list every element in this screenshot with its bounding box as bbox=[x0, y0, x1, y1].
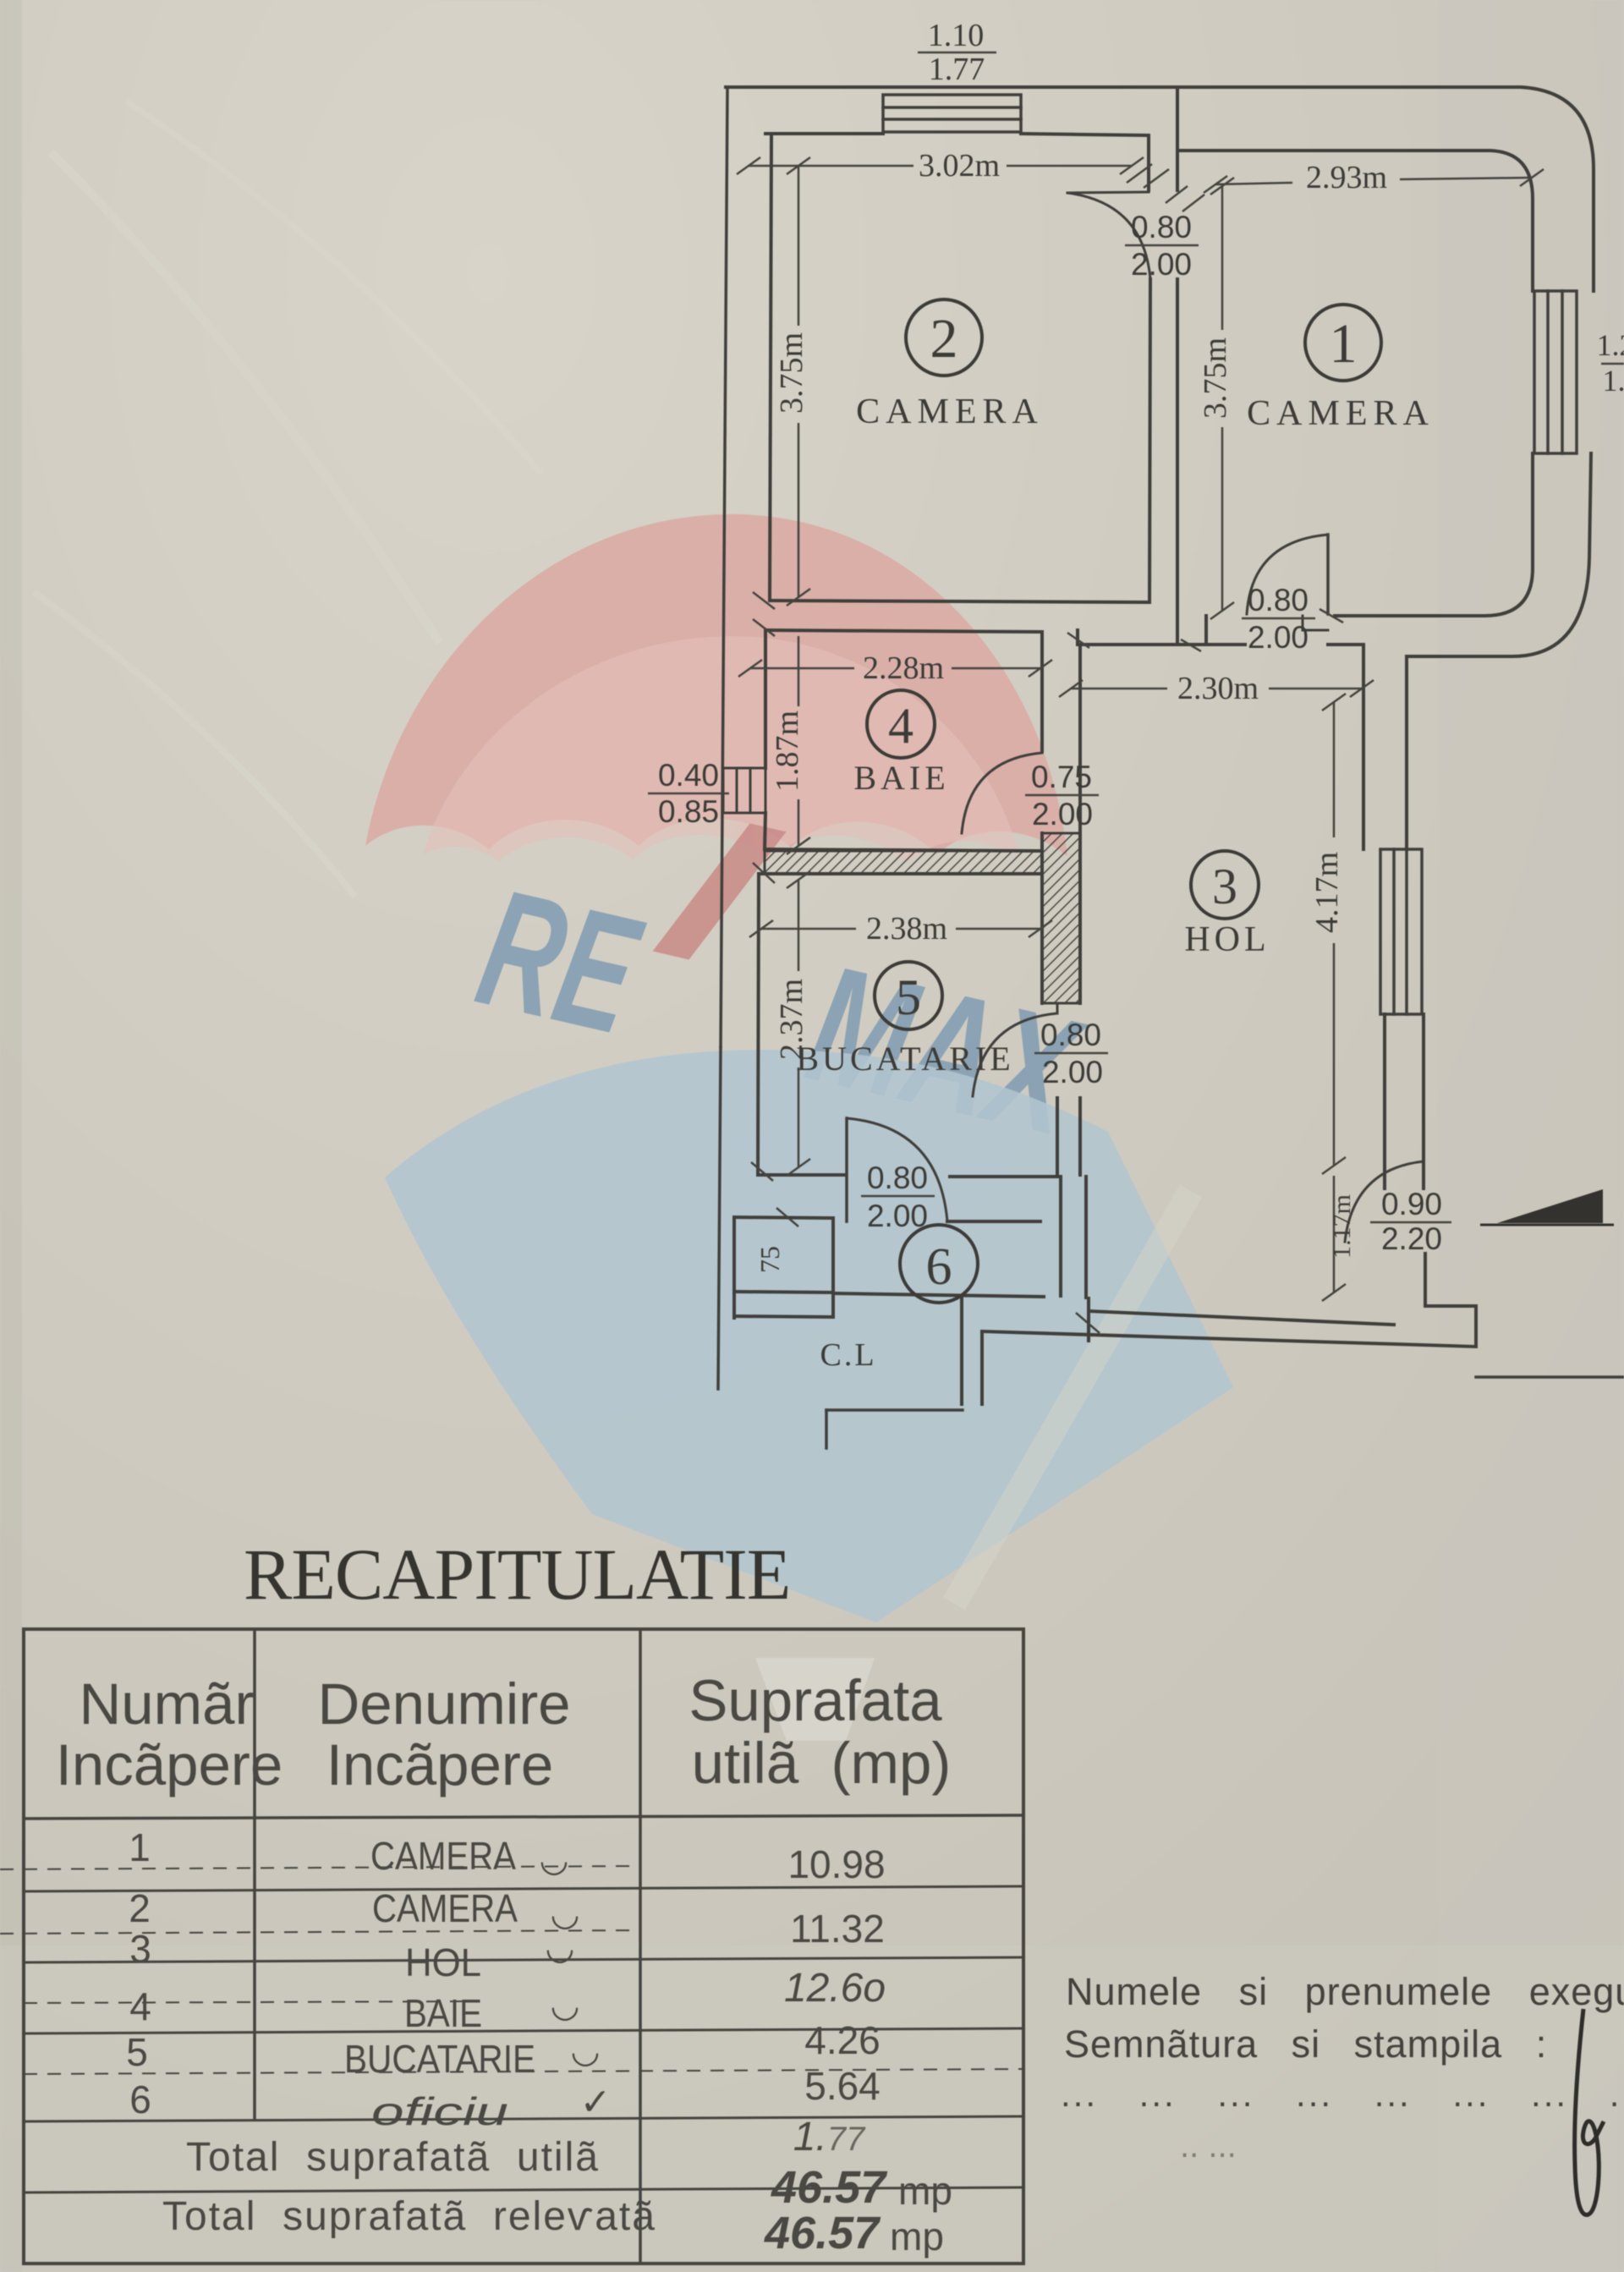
svg-text:CAMERA: CAMERA bbox=[1247, 394, 1435, 433]
svg-text:Numãr: Numãr bbox=[79, 1671, 254, 1737]
svg-text:... ... ... ... ... ... ... ..: ... ... ... ... ... ... ... ... bbox=[1061, 2074, 1624, 2114]
svg-text:3.75m: 3.75m bbox=[774, 332, 809, 414]
svg-text:RECAPITULATIE: RECAPITULATIE bbox=[244, 1534, 790, 1615]
svg-text:Numele si prenumele exeɡuta: Numele si prenumele exeɡuta bbox=[1066, 1970, 1624, 2013]
svg-text:75: 75 bbox=[754, 1246, 785, 1273]
svg-text:2.93m: 2.93m bbox=[1306, 160, 1387, 195]
svg-text:2.38m: 2.38m bbox=[866, 911, 947, 947]
svg-text:3: 3 bbox=[1212, 859, 1237, 914]
svg-text:5: 5 bbox=[126, 2030, 148, 2074]
svg-text:10.98: 10.98 bbox=[787, 1842, 885, 1886]
svg-text:◡: ◡ bbox=[551, 1987, 580, 2024]
svg-text:4: 4 bbox=[129, 1984, 151, 2028]
svg-text:2: 2 bbox=[930, 308, 958, 370]
svg-text:46.57: 46.57 bbox=[764, 2208, 881, 2258]
svg-text:0.80: 0.80 bbox=[867, 1161, 928, 1195]
svg-text:4.26: 4.26 bbox=[804, 2018, 881, 2062]
svg-text:0.80: 0.80 bbox=[1131, 210, 1192, 244]
svg-text:◡: ◡ bbox=[571, 2033, 601, 2070]
svg-text:0.75: 0.75 bbox=[1031, 760, 1092, 794]
svg-text:0.80: 0.80 bbox=[1040, 1018, 1101, 1052]
svg-text:HOL: HOL bbox=[1184, 920, 1270, 959]
svg-text:2.00: 2.00 bbox=[867, 1199, 928, 1233]
svg-text:.. ...: .. ... bbox=[1180, 2127, 1237, 2165]
svg-text:◡: ◡ bbox=[540, 1841, 569, 1879]
svg-text:1: 1 bbox=[129, 1825, 151, 1869]
svg-text:0.90: 0.90 bbox=[1381, 1187, 1442, 1221]
svg-text:◡: ◡ bbox=[546, 1929, 575, 1967]
svg-text:Semnãtura si stampila :: Semnãtura si stampila : bbox=[1064, 2022, 1547, 2066]
svg-text:CAMERA: CAMERA bbox=[372, 1886, 518, 1930]
svg-text:1.77: 1.77 bbox=[793, 2115, 866, 2159]
svg-text:5.64: 5.64 bbox=[804, 2064, 881, 2108]
svg-text:1.77: 1.77 bbox=[929, 52, 985, 87]
svg-text:3.02m: 3.02m bbox=[919, 148, 1000, 184]
svg-text:2: 2 bbox=[129, 1886, 151, 1930]
svg-text:Total suprafatã releѵatã: Total suprafatã releѵatã bbox=[162, 2194, 656, 2239]
svg-text:0.85: 0.85 bbox=[658, 794, 719, 829]
svg-text:oficiu: oficiu bbox=[371, 2089, 508, 2133]
svg-text:11.32: 11.32 bbox=[790, 1907, 885, 1951]
svg-text:BAIE: BAIE bbox=[853, 759, 949, 797]
svg-text:2.00: 2.00 bbox=[1032, 797, 1093, 831]
svg-text:HOL: HOL bbox=[405, 1940, 481, 1984]
svg-text:4: 4 bbox=[888, 698, 913, 754]
svg-text:2.00: 2.00 bbox=[1248, 620, 1309, 655]
svg-text:Suprafata: Suprafata bbox=[689, 1668, 942, 1733]
svg-text:Incãpere: Incãpere bbox=[56, 1732, 283, 1797]
svg-text:BUCATARIE: BUCATARIE bbox=[796, 1040, 1013, 1078]
svg-text:mp: mp bbox=[890, 2214, 944, 2258]
svg-text:5: 5 bbox=[896, 969, 921, 1025]
svg-text:1: 1 bbox=[1330, 313, 1358, 375]
svg-text:BUCATARIE: BUCATARIE bbox=[344, 2037, 535, 2081]
svg-text:46.57: 46.57 bbox=[771, 2162, 888, 2213]
svg-text:mp: mp bbox=[898, 2169, 952, 2213]
svg-text:Total suprafatã utilã: Total suprafatã utilã bbox=[186, 2135, 600, 2180]
svg-text:2.30m: 2.30m bbox=[1177, 671, 1259, 706]
svg-text:CAMERA: CAMERA bbox=[856, 392, 1044, 431]
svg-text:Incãpere: Incãpere bbox=[326, 1732, 554, 1797]
svg-text:1.2: 1.2 bbox=[1597, 328, 1624, 362]
svg-text:0.40: 0.40 bbox=[658, 758, 719, 793]
svg-text:◡: ◡ bbox=[551, 1896, 580, 1933]
svg-text:1.17m: 1.17m bbox=[1328, 1194, 1356, 1259]
svg-text:6: 6 bbox=[926, 1238, 952, 1296]
svg-text:1.87m: 1.87m bbox=[770, 711, 805, 792]
svg-text:3.75m: 3.75m bbox=[1198, 338, 1233, 419]
svg-text:2.00: 2.00 bbox=[1131, 247, 1192, 282]
svg-text:C.L: C.L bbox=[820, 1337, 876, 1373]
svg-text:2.00: 2.00 bbox=[1042, 1055, 1103, 1089]
svg-text:6: 6 bbox=[129, 2077, 151, 2121]
svg-text:2.20: 2.20 bbox=[1381, 1221, 1442, 1256]
svg-text:Denumire: Denumire bbox=[317, 1671, 570, 1737]
svg-text:CAMERA: CAMERA bbox=[370, 1834, 516, 1878]
svg-text:1.: 1. bbox=[1603, 364, 1624, 398]
svg-text:12.6o: 12.6o bbox=[784, 1966, 886, 2011]
svg-text:utilã (mp): utilã (mp) bbox=[692, 1731, 952, 1796]
svg-text:2.28m: 2.28m bbox=[863, 650, 944, 686]
svg-text:1.10: 1.10 bbox=[928, 18, 985, 53]
svg-text:BAIE: BAIE bbox=[404, 1991, 482, 2035]
svg-text:0.80: 0.80 bbox=[1248, 583, 1309, 617]
svg-text:4.17m: 4.17m bbox=[1309, 852, 1345, 933]
svg-text:3: 3 bbox=[129, 1927, 151, 1971]
svg-text:✓: ✓ bbox=[580, 2082, 612, 2123]
